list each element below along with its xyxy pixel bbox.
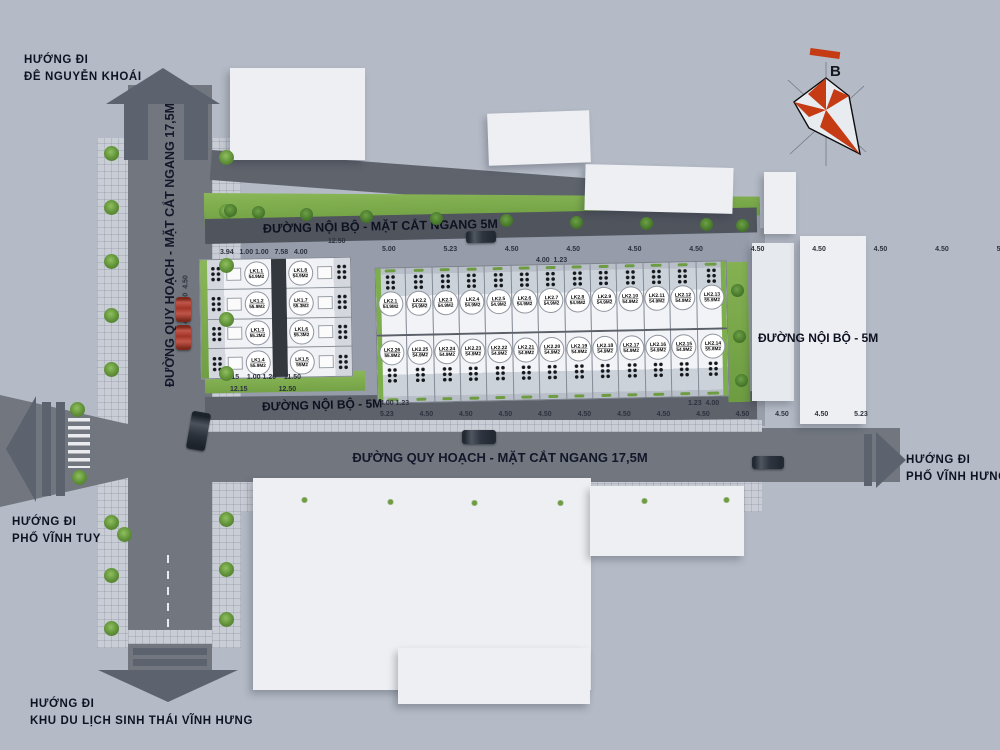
lot-cell: LK2.1054.9M2	[617, 263, 645, 330]
car-red	[176, 325, 191, 350]
lot-area: 55.9M2	[703, 297, 719, 303]
lot-cell: LK2.2655.9M2	[377, 336, 409, 403]
lot-badge-text: LK2.654.9M2	[517, 295, 533, 307]
road-internal-top-label: ĐƯỜNG NỘI BỘ - MẶT CẮT NGANG 5M	[263, 217, 498, 236]
lot-cell: LK2.1355.9M2	[696, 261, 727, 328]
lot-cell: LK1.755.3M2	[286, 287, 351, 318]
lot-badge: LK1.755.3M2	[290, 291, 313, 314]
lot-yard	[317, 296, 332, 309]
lot-cell: LK1.555M2	[288, 347, 352, 377]
lot-badge-text: LK2.2154.9M2	[518, 344, 534, 356]
lot-cell: LK1.854.9M2	[286, 258, 351, 289]
tree	[733, 330, 746, 343]
tree	[219, 562, 234, 577]
lot-area: 54.9M2	[518, 350, 534, 356]
roof-dots	[338, 353, 349, 369]
lot-badge-text: LK2.954.9M2	[596, 293, 612, 305]
lot-area: 54.9M2	[649, 298, 665, 304]
lot-cell: LK2.2554.9M2	[407, 335, 435, 402]
lot-cell: LK2.1654.9M2	[645, 331, 673, 398]
lot-cell: LK2.454.9M2	[459, 266, 487, 333]
lot-cell: LK2.1554.9M2	[671, 330, 699, 397]
lot-area: 54.9M2	[439, 351, 455, 357]
lot-badge: LK2.2354.9M2	[461, 339, 484, 362]
lot-badge: LK2.254.9M2	[408, 292, 431, 315]
lot-badge-text: LK2.2554.9M2	[412, 346, 428, 358]
roof-dots	[519, 271, 530, 287]
arrow-up-leg	[124, 104, 148, 160]
lot-badge: LK2.754.9M2	[540, 289, 563, 312]
lot-badge: LK2.554.9M2	[487, 290, 510, 313]
lot-badge: LK1.355.2M2	[246, 321, 269, 344]
arrow-right-leg	[864, 434, 872, 486]
lot-badge: LK2.2554.9M2	[409, 341, 432, 364]
roof-dots	[337, 324, 348, 340]
compass-icon: B	[780, 42, 872, 170]
lot-area: 55.9M2	[249, 303, 265, 309]
lot-badge-text: LK1.655.3M2	[294, 326, 310, 338]
block1-col-right: LK1.854.9M2LK1.755.3M2LK1.655.3M2LK1.555…	[286, 258, 352, 377]
lot-badge: LK1.154.9M2	[245, 262, 268, 285]
lot-badge-text: LK2.154.9M2	[383, 298, 399, 310]
arrow-up-leg	[184, 104, 208, 160]
roof-dots	[387, 367, 398, 383]
lot-badge-text: LK2.1954.9M2	[570, 343, 586, 355]
tree	[104, 146, 119, 161]
crosswalk	[68, 418, 90, 468]
tree	[736, 219, 749, 232]
lot-badge-text: LK2.2354.9M2	[465, 345, 481, 357]
tree	[104, 308, 119, 323]
tree	[300, 208, 313, 221]
tree	[72, 470, 87, 485]
lot-badge-text: LK2.1054.9M2	[622, 293, 638, 305]
grass-tuft	[386, 499, 395, 505]
lot-area: 54.9M2	[544, 300, 560, 306]
lot-cell: LK2.654.9M2	[511, 265, 539, 332]
roof-dots	[442, 366, 453, 382]
lot-badge-text: LK2.2454.9M2	[438, 346, 454, 358]
grass-tuft	[640, 498, 649, 504]
lot-cell: LK2.554.9M2	[485, 266, 513, 333]
lot-badge-text: LK2.554.9M2	[491, 296, 507, 308]
road-horizontal-main-label: ĐƯỜNG QUY HOẠCH - MẶT CẮT NGANG 17,5M	[350, 450, 650, 465]
lot-cell: LK2.2154.9M2	[513, 333, 541, 400]
direction-top-line1: HƯỚNG ĐI	[24, 54, 88, 66]
direction-left: HƯỚNG ĐI PHỐ VĨNH TUY	[12, 514, 101, 549]
roof-dots	[574, 363, 585, 379]
lot-area: 54.9M2	[465, 351, 481, 357]
lot-cell: LK2.254.9M2	[406, 267, 434, 334]
lot-area: 54.9M2	[650, 347, 666, 353]
arrow-left-leg	[42, 402, 51, 496]
lot-badge: LK2.154.9M2	[379, 292, 402, 315]
block2-row-bottom: LK2.2655.9M2LK2.2554.9M2LK2.2454.9M2LK2.…	[377, 327, 728, 402]
lot-area: 54.9M2	[544, 349, 560, 355]
tree	[117, 527, 132, 542]
lot-cell: LK2.954.9M2	[591, 264, 619, 331]
crossing-band	[128, 630, 212, 644]
lot-area: 55.2M2	[250, 333, 266, 339]
lot-badge-text: LK2.2254.9M2	[491, 345, 507, 357]
roof-dots	[679, 361, 690, 377]
lot-badge: LK2.854.9M2	[566, 288, 589, 311]
tree	[219, 258, 234, 273]
lot-area: 54.9M2	[622, 299, 638, 305]
roof-dots	[440, 273, 451, 289]
direction-top-line2: ĐÊ NGUYỄN KHOÁI	[24, 71, 142, 83]
lot-area: 54.9M2	[438, 302, 454, 308]
lot-badge-text: LK2.254.9M2	[411, 297, 427, 309]
lot-badge: LK1.455.9M2	[247, 351, 270, 374]
lot-badge: LK2.1154.9M2	[645, 287, 668, 310]
lot-area: 54.9M2	[249, 273, 265, 279]
grass-tuft	[300, 497, 309, 503]
tree	[500, 214, 513, 227]
tree	[731, 284, 744, 297]
lot-badge-text: LK2.1754.9M2	[623, 342, 639, 354]
lot-badge: LK2.1054.9M2	[619, 287, 642, 310]
lot-cell: LK2.1154.9M2	[643, 263, 671, 330]
lot-badge-text: LK2.1654.9M2	[650, 341, 666, 353]
roof-dots	[468, 366, 479, 382]
tree	[70, 402, 85, 417]
tree	[430, 212, 443, 225]
lot-cell: LK2.754.9M2	[538, 265, 566, 332]
lot-badge-text: LK1.755.3M2	[293, 297, 309, 309]
lot-badge: LK2.354.9M2	[434, 291, 457, 314]
lot-cell: LK2.854.9M2	[564, 264, 592, 331]
lot-badge-text: LK1.555M2	[295, 356, 309, 368]
roof-dots	[337, 294, 348, 310]
road-internal-right-label: ĐƯỜNG NỘI BỘ - 5M	[758, 331, 878, 345]
grass-tuft	[556, 500, 565, 506]
roof-dots	[466, 273, 477, 289]
building	[590, 486, 744, 556]
tree	[219, 512, 234, 527]
lot-cell: LK2.1254.9M2	[670, 262, 698, 329]
direction-bottom-line2: KHU DU LỊCH SINH THÁI VĨNH HƯNG	[30, 715, 253, 727]
roof-dots	[598, 270, 609, 286]
block2-row-top: LK2.154.9M2LK2.254.9M2LK2.354.9M2LK2.454…	[376, 261, 727, 334]
roof-dots	[600, 363, 611, 379]
dimension-row: 3.94 1.00 1.00 7.58 4.00	[220, 249, 308, 256]
lot-badge-text: LK2.854.9M2	[570, 294, 586, 306]
building	[752, 243, 794, 401]
lot-cell: LK2.2254.9M2	[486, 334, 514, 401]
lot-area: 54.9M2	[491, 301, 507, 307]
tree	[219, 612, 234, 627]
tree	[224, 204, 237, 217]
lot-badge: LK2.1254.9M2	[672, 286, 695, 309]
lot-badge: LK1.854.9M2	[289, 261, 312, 284]
roof-dots	[705, 268, 716, 284]
lot-id: LK1.7	[293, 297, 309, 303]
lot-cell: LK2.2354.9M2	[460, 334, 488, 401]
arrow-left-icon	[6, 396, 36, 502]
lot-badge: LK2.1854.9M2	[593, 337, 616, 360]
roof-dots	[651, 269, 662, 285]
car-dark	[466, 231, 496, 244]
lot-badge: LK1.255.9M2	[246, 292, 269, 315]
lot-badge: LK2.1754.9M2	[620, 336, 643, 359]
dimension-row: 1.23 4.00	[688, 400, 719, 407]
tree	[104, 568, 119, 583]
lot-area: 55.9M2	[250, 363, 266, 369]
direction-right-line2: PHỐ VĨNH HƯNG	[906, 471, 1000, 483]
lot-cell: LK2.1954.9M2	[566, 332, 594, 399]
direction-right-line1: HƯỚNG ĐI	[906, 454, 970, 466]
roof-dots	[572, 270, 583, 286]
road-vertical-main-label: ĐƯỜNG QUY HOẠCH - MẶT CẮT NGANG 17,5M	[163, 103, 177, 387]
roof-dots	[492, 272, 503, 288]
tree	[360, 210, 373, 223]
grass-tuft	[722, 497, 731, 503]
roof-dots	[707, 361, 718, 377]
lot-badge: LK2.1355.9M2	[700, 285, 723, 308]
arrow-down-bar	[133, 659, 207, 666]
lot-badge-text: LK2.2655.9M2	[384, 347, 400, 359]
lot-area: 54.9M2	[596, 299, 612, 305]
building	[584, 164, 733, 214]
tree	[104, 621, 119, 636]
lot-area: 54.9M2	[571, 349, 587, 355]
lot-badge: LK2.2154.9M2	[514, 338, 537, 361]
lot-badge-text: LK2.1554.9M2	[676, 341, 692, 353]
tree	[700, 218, 713, 231]
lot-badge: LK2.2054.9M2	[541, 338, 564, 361]
lot-area: 55.3M2	[294, 332, 310, 338]
building	[764, 172, 796, 234]
tree	[219, 312, 234, 327]
direction-top: HƯỚNG ĐI ĐÊ NGUYỄN KHOÁI	[24, 52, 142, 87]
tree	[104, 254, 119, 269]
direction-bottom-line1: HƯỚNG ĐI	[30, 698, 94, 710]
arrow-down-bar	[133, 648, 207, 655]
lot-area: 54.9M2	[412, 352, 428, 358]
lot-badge-text: LK2.754.9M2	[543, 295, 559, 307]
roof-dots	[545, 271, 556, 287]
tree	[735, 374, 748, 387]
lot-badge-text: LK2.1455.8M2	[704, 340, 720, 352]
arrow-right-icon	[876, 432, 906, 488]
lot-area: 54.9M2	[293, 273, 309, 279]
lot-cell: LK2.2454.9M2	[434, 335, 462, 402]
lot-area: 54.9M2	[517, 301, 533, 307]
lot-area: 54.9M2	[491, 350, 507, 356]
lot-badge: LK2.2254.9M2	[488, 339, 511, 362]
lot-yard	[318, 355, 333, 368]
car-red	[176, 297, 191, 322]
lot-area: 55.9M2	[384, 353, 400, 359]
lot-id: LK1.2	[249, 298, 265, 304]
lot-badge: LK2.954.9M2	[592, 288, 615, 311]
direction-bottom: HƯỚNG ĐI KHU DU LỊCH SINH THÁI VĨNH HƯNG	[30, 696, 253, 731]
tree	[219, 150, 234, 165]
lot-cell: LK1.655.3M2	[287, 317, 352, 348]
lot-badge: LK2.1455.8M2	[701, 334, 724, 357]
lot-area: 54.9M2	[675, 297, 691, 303]
lot-badge: LK1.555M2	[291, 350, 314, 373]
lot-badge: LK2.2454.9M2	[435, 340, 458, 363]
arrow-left-leg	[56, 402, 65, 496]
dimension-row: 12.15 12.50	[230, 386, 296, 393]
lot-badge-text: LK2.1254.9M2	[675, 292, 691, 304]
compass-bar	[810, 48, 841, 59]
direction-left-line1: HƯỚNG ĐI	[12, 516, 76, 528]
dimension-row: 11.15 1.00 1.20 11.50	[222, 374, 301, 381]
roof-dots	[547, 364, 558, 380]
block-lk2: LK2.154.9M2LK2.254.9M2LK2.354.9M2LK2.454…	[375, 260, 730, 403]
lot-cell: LK2.1854.9M2	[592, 332, 620, 399]
lot-area: 54.9M2	[464, 302, 480, 308]
lot-badge: LK1.655.3M2	[290, 321, 313, 344]
roof-dots	[521, 364, 532, 380]
lot-badge: LK2.1554.9M2	[673, 335, 696, 358]
roof-dots	[385, 274, 396, 290]
lot-cell: LK2.1754.9M2	[618, 331, 646, 398]
lot-badge-text: LK2.1854.9M2	[597, 342, 613, 354]
lot-badge-text: LK2.454.9M2	[464, 296, 480, 308]
lot-badge-text: LK2.354.9M2	[438, 297, 454, 309]
road-centre-line	[167, 555, 169, 627]
roof-dots	[494, 365, 505, 381]
lot-yard	[317, 266, 332, 279]
lot-cell: LK2.154.9M2	[376, 268, 408, 335]
lot-badge-text: LK2.1355.9M2	[703, 291, 719, 303]
lot-cell: LK2.2054.9M2	[539, 333, 567, 400]
roof-dots	[626, 362, 637, 378]
tree	[104, 515, 119, 530]
lot-area: 54.9M2	[411, 303, 427, 309]
tree	[570, 216, 583, 229]
tree	[252, 206, 265, 219]
car-dark	[752, 456, 784, 469]
lot-yard	[318, 325, 333, 338]
lot-badge-text: LK2.1154.9M2	[649, 292, 665, 304]
car-dark	[462, 430, 496, 444]
lot-badge: LK2.1954.9M2	[567, 337, 590, 360]
lot-badge: LK2.2655.9M2	[380, 341, 403, 364]
tree	[640, 217, 653, 230]
lot-area: 54.9M2	[676, 346, 692, 352]
north-label: B	[830, 63, 841, 80]
lot-badge-text: LK1.255.9M2	[249, 298, 265, 310]
direction-right: HƯỚNG ĐI PHỐ VĨNH HƯNG	[906, 452, 1000, 487]
building	[398, 648, 590, 704]
direction-left-line2: PHỐ VĨNH TUY	[12, 533, 101, 545]
lot-badge-text: LK1.355.2M2	[250, 327, 266, 339]
roof-dots	[653, 362, 664, 378]
lot-area: 55.3M2	[293, 302, 309, 308]
dimension-row: 5.23 4.50 4.50 4.50 4.50 4.50 4.50 4.50 …	[380, 411, 868, 418]
lot-area: 55M2	[296, 362, 310, 368]
grass-tuft	[470, 500, 479, 506]
roof-dots	[415, 367, 426, 383]
lot-area: 54.9M2	[597, 348, 613, 354]
roof-dots	[413, 274, 424, 290]
lot-badge-text: LK1.154.9M2	[249, 268, 265, 280]
lot-cell: LK2.1455.8M2	[698, 329, 729, 396]
roof-dots	[624, 269, 635, 285]
dimension-row: 12.50	[328, 238, 346, 245]
lot-area: 55.8M2	[705, 346, 721, 352]
building	[800, 236, 866, 424]
lot-badge: LK2.454.9M2	[460, 290, 483, 313]
tree	[219, 366, 234, 381]
tree	[104, 362, 119, 377]
lot-badge-text: LK2.2054.9M2	[544, 344, 560, 356]
lot-badge: LK2.1654.9M2	[646, 336, 669, 359]
tree	[104, 200, 119, 215]
building	[487, 110, 591, 166]
dimension-row: 4.00 1.23	[536, 257, 567, 264]
building	[230, 68, 365, 160]
lot-badge-text: LK1.455.9M2	[250, 357, 266, 369]
dimension-row: 5.00 5.23 4.50 4.50 4.50 4.50 4.50 4.50 …	[382, 246, 1000, 253]
roof-dots	[677, 268, 688, 284]
lot-area: 54.9M2	[570, 300, 586, 306]
roof-dots	[336, 264, 347, 280]
lot-area: 54.9M2	[623, 348, 639, 354]
lot-area: 54.9M2	[383, 304, 399, 310]
lot-cell: LK2.354.9M2	[432, 267, 460, 334]
dimension-row: 4.00 1.23	[380, 400, 409, 407]
lot-badge: LK2.654.9M2	[513, 289, 536, 312]
lot-badge-text: LK1.854.9M2	[293, 267, 309, 279]
